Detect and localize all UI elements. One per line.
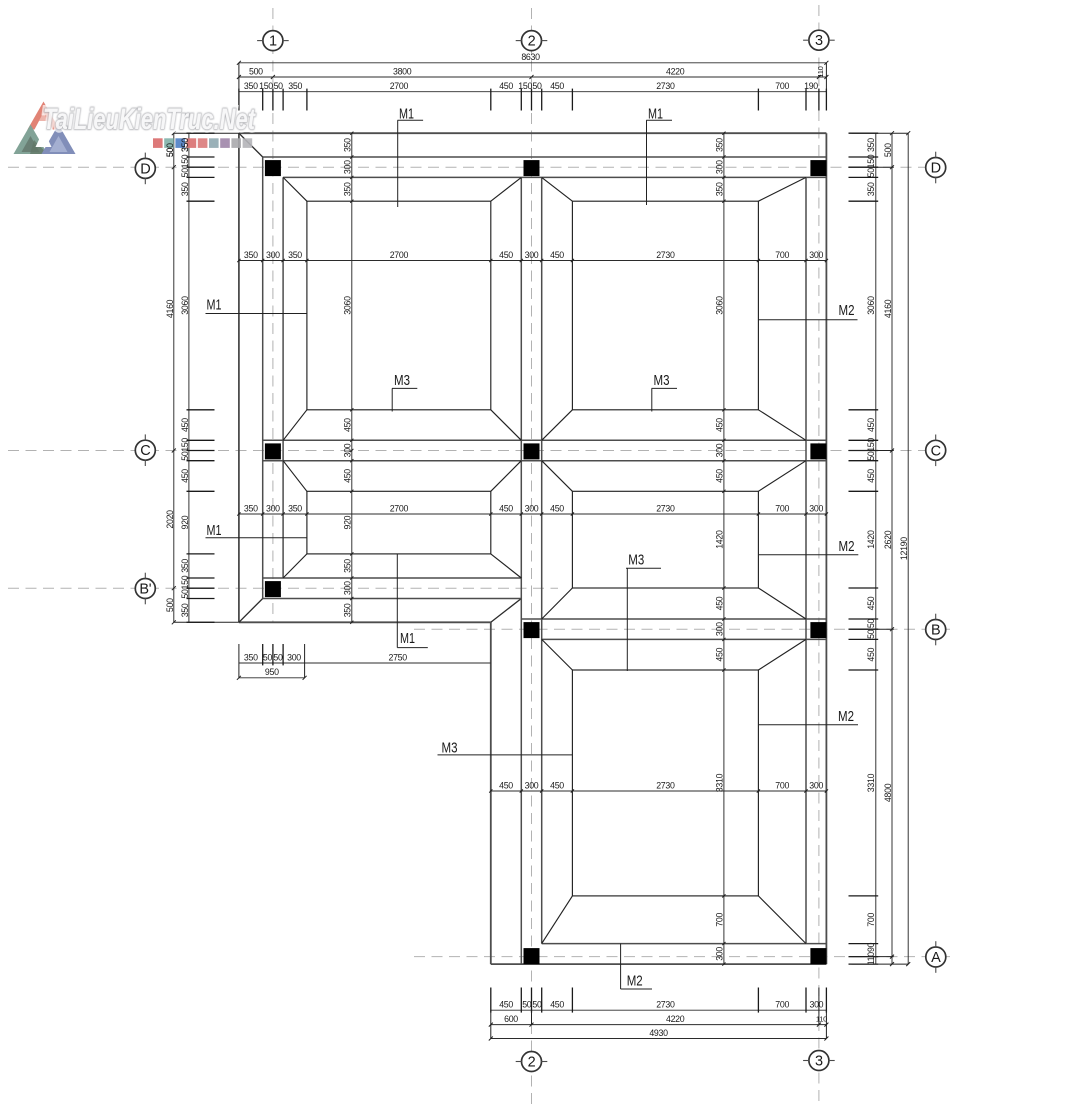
svg-text:3310: 3310 <box>715 773 725 792</box>
svg-text:M1: M1 <box>400 631 415 647</box>
svg-text:50: 50 <box>866 168 876 178</box>
svg-text:350: 350 <box>342 138 352 152</box>
svg-text:350: 350 <box>180 138 190 152</box>
svg-text:300: 300 <box>287 652 301 662</box>
svg-text:TaiLieuKienTruc.Net: TaiLieuKienTruc.Net <box>43 103 256 136</box>
svg-text:450: 450 <box>550 81 564 91</box>
svg-text:M3: M3 <box>654 373 670 389</box>
svg-text:600: 600 <box>504 1014 518 1024</box>
svg-text:300: 300 <box>525 780 539 790</box>
svg-text:110: 110 <box>816 1015 827 1024</box>
svg-text:350: 350 <box>715 138 725 152</box>
svg-text:450: 450 <box>715 647 725 661</box>
svg-text:350: 350 <box>244 503 258 513</box>
svg-text:700: 700 <box>775 250 789 260</box>
svg-text:B: B <box>931 623 940 639</box>
svg-text:350: 350 <box>342 182 352 196</box>
svg-text:1: 1 <box>269 34 277 50</box>
svg-text:300: 300 <box>715 443 725 457</box>
svg-text:300: 300 <box>809 250 823 260</box>
svg-text:3: 3 <box>815 33 823 49</box>
svg-text:B': B' <box>139 582 151 598</box>
svg-text:350: 350 <box>288 503 302 513</box>
svg-text:300: 300 <box>266 250 280 260</box>
svg-text:300: 300 <box>342 443 352 457</box>
svg-text:300: 300 <box>525 250 539 260</box>
svg-text:920: 920 <box>180 515 190 529</box>
svg-text:350: 350 <box>244 250 258 260</box>
svg-text:50: 50 <box>866 451 876 461</box>
svg-text:50: 50 <box>532 1000 542 1010</box>
svg-text:450: 450 <box>866 469 876 483</box>
svg-text:1420: 1420 <box>715 530 725 549</box>
svg-text:2700: 2700 <box>390 250 409 260</box>
svg-text:110: 110 <box>816 66 825 77</box>
svg-text:50: 50 <box>273 652 283 662</box>
svg-text:450: 450 <box>499 503 513 513</box>
svg-text:450: 450 <box>180 418 190 432</box>
svg-text:700: 700 <box>775 1000 789 1010</box>
svg-text:2730: 2730 <box>656 1000 675 1010</box>
svg-text:A: A <box>931 950 941 966</box>
svg-text:2700: 2700 <box>390 81 409 91</box>
svg-text:450: 450 <box>499 81 513 91</box>
svg-text:350: 350 <box>244 652 258 662</box>
svg-text:50: 50 <box>532 81 542 91</box>
svg-text:950: 950 <box>265 667 279 677</box>
svg-text:350: 350 <box>244 81 258 91</box>
svg-text:M1: M1 <box>207 523 222 539</box>
svg-text:300: 300 <box>342 160 352 174</box>
svg-text:C: C <box>931 443 941 459</box>
svg-text:M1: M1 <box>207 298 222 314</box>
svg-text:C: C <box>140 443 150 459</box>
svg-text:500: 500 <box>165 598 175 612</box>
svg-text:3060: 3060 <box>180 296 190 315</box>
svg-text:700: 700 <box>775 780 789 790</box>
svg-text:450: 450 <box>866 647 876 661</box>
svg-text:8630: 8630 <box>521 52 540 62</box>
svg-text:2: 2 <box>528 1055 536 1071</box>
svg-text:350: 350 <box>866 138 876 152</box>
svg-text:2: 2 <box>528 34 536 50</box>
svg-text:450: 450 <box>715 596 725 610</box>
svg-text:50: 50 <box>866 629 876 639</box>
svg-text:3060: 3060 <box>342 296 352 315</box>
svg-text:50: 50 <box>263 652 273 662</box>
svg-text:2730: 2730 <box>656 250 675 260</box>
svg-text:2750: 2750 <box>389 652 408 662</box>
svg-text:M2: M2 <box>627 973 643 989</box>
svg-text:3: 3 <box>815 1054 823 1070</box>
svg-text:700: 700 <box>715 913 725 927</box>
svg-text:110: 110 <box>866 952 876 966</box>
svg-text:450: 450 <box>550 780 564 790</box>
svg-text:50: 50 <box>180 589 190 599</box>
svg-text:150: 150 <box>866 154 876 168</box>
svg-text:D: D <box>140 161 150 177</box>
svg-text:700: 700 <box>775 81 789 91</box>
svg-text:450: 450 <box>499 250 513 260</box>
svg-text:350: 350 <box>180 182 190 196</box>
svg-text:150: 150 <box>180 154 190 168</box>
svg-text:450: 450 <box>866 418 876 432</box>
svg-text:4800: 4800 <box>883 783 893 802</box>
svg-text:3310: 3310 <box>866 773 876 792</box>
svg-text:350: 350 <box>180 559 190 573</box>
svg-text:300: 300 <box>809 780 823 790</box>
svg-text:300: 300 <box>809 503 823 513</box>
svg-text:300: 300 <box>342 581 352 595</box>
svg-text:50: 50 <box>180 168 190 178</box>
svg-text:450: 450 <box>499 780 513 790</box>
svg-text:450: 450 <box>715 469 725 483</box>
svg-text:50: 50 <box>180 451 190 461</box>
svg-text:2020: 2020 <box>165 510 175 529</box>
svg-text:4220: 4220 <box>666 1014 685 1024</box>
svg-text:920: 920 <box>342 515 352 529</box>
svg-text:300: 300 <box>525 503 539 513</box>
svg-text:350: 350 <box>288 250 302 260</box>
svg-text:M3: M3 <box>628 553 644 569</box>
svg-text:2730: 2730 <box>656 503 675 513</box>
svg-text:350: 350 <box>866 182 876 196</box>
svg-text:450: 450 <box>342 469 352 483</box>
svg-text:M3: M3 <box>442 740 458 756</box>
svg-text:350: 350 <box>288 81 302 91</box>
svg-text:500: 500 <box>883 143 893 157</box>
svg-text:M3: M3 <box>394 373 410 389</box>
svg-text:300: 300 <box>715 160 725 174</box>
svg-text:4930: 4930 <box>649 1028 668 1038</box>
svg-text:50: 50 <box>274 81 284 91</box>
svg-text:700: 700 <box>866 913 876 927</box>
svg-text:450: 450 <box>550 250 564 260</box>
svg-text:450: 450 <box>499 1000 513 1010</box>
svg-text:3060: 3060 <box>715 296 725 315</box>
svg-text:1420: 1420 <box>866 530 876 549</box>
svg-text:4160: 4160 <box>165 299 175 318</box>
svg-text:M2: M2 <box>839 539 855 555</box>
svg-text:300: 300 <box>266 503 280 513</box>
svg-text:50: 50 <box>866 619 876 629</box>
svg-text:4160: 4160 <box>883 299 893 318</box>
svg-text:4220: 4220 <box>666 66 685 76</box>
svg-text:M2: M2 <box>838 709 854 725</box>
svg-text:300: 300 <box>810 1000 824 1010</box>
svg-text:350: 350 <box>342 559 352 573</box>
svg-text:2700: 2700 <box>390 503 409 513</box>
svg-text:300: 300 <box>715 622 725 636</box>
svg-text:350: 350 <box>715 182 725 196</box>
svg-text:2730: 2730 <box>656 780 675 790</box>
svg-text:150: 150 <box>518 81 532 91</box>
svg-text:50: 50 <box>522 1000 532 1010</box>
svg-text:500: 500 <box>249 66 263 76</box>
svg-text:3800: 3800 <box>393 66 412 76</box>
svg-text:700: 700 <box>775 503 789 513</box>
svg-text:450: 450 <box>342 418 352 432</box>
svg-text:2730: 2730 <box>656 81 675 91</box>
svg-text:450: 450 <box>180 469 190 483</box>
svg-text:450: 450 <box>550 1000 564 1010</box>
svg-text:M2: M2 <box>839 303 855 319</box>
svg-text:450: 450 <box>866 596 876 610</box>
svg-text:3060: 3060 <box>866 296 876 315</box>
svg-text:350: 350 <box>342 603 352 617</box>
svg-text:350: 350 <box>180 603 190 617</box>
svg-text:D: D <box>931 161 941 177</box>
svg-text:500: 500 <box>165 143 175 157</box>
svg-text:2620: 2620 <box>883 530 893 549</box>
svg-text:12190: 12190 <box>899 537 909 560</box>
svg-text:150: 150 <box>259 81 273 91</box>
svg-text:450: 450 <box>550 503 564 513</box>
svg-text:300: 300 <box>715 947 725 961</box>
svg-text:450: 450 <box>715 418 725 432</box>
